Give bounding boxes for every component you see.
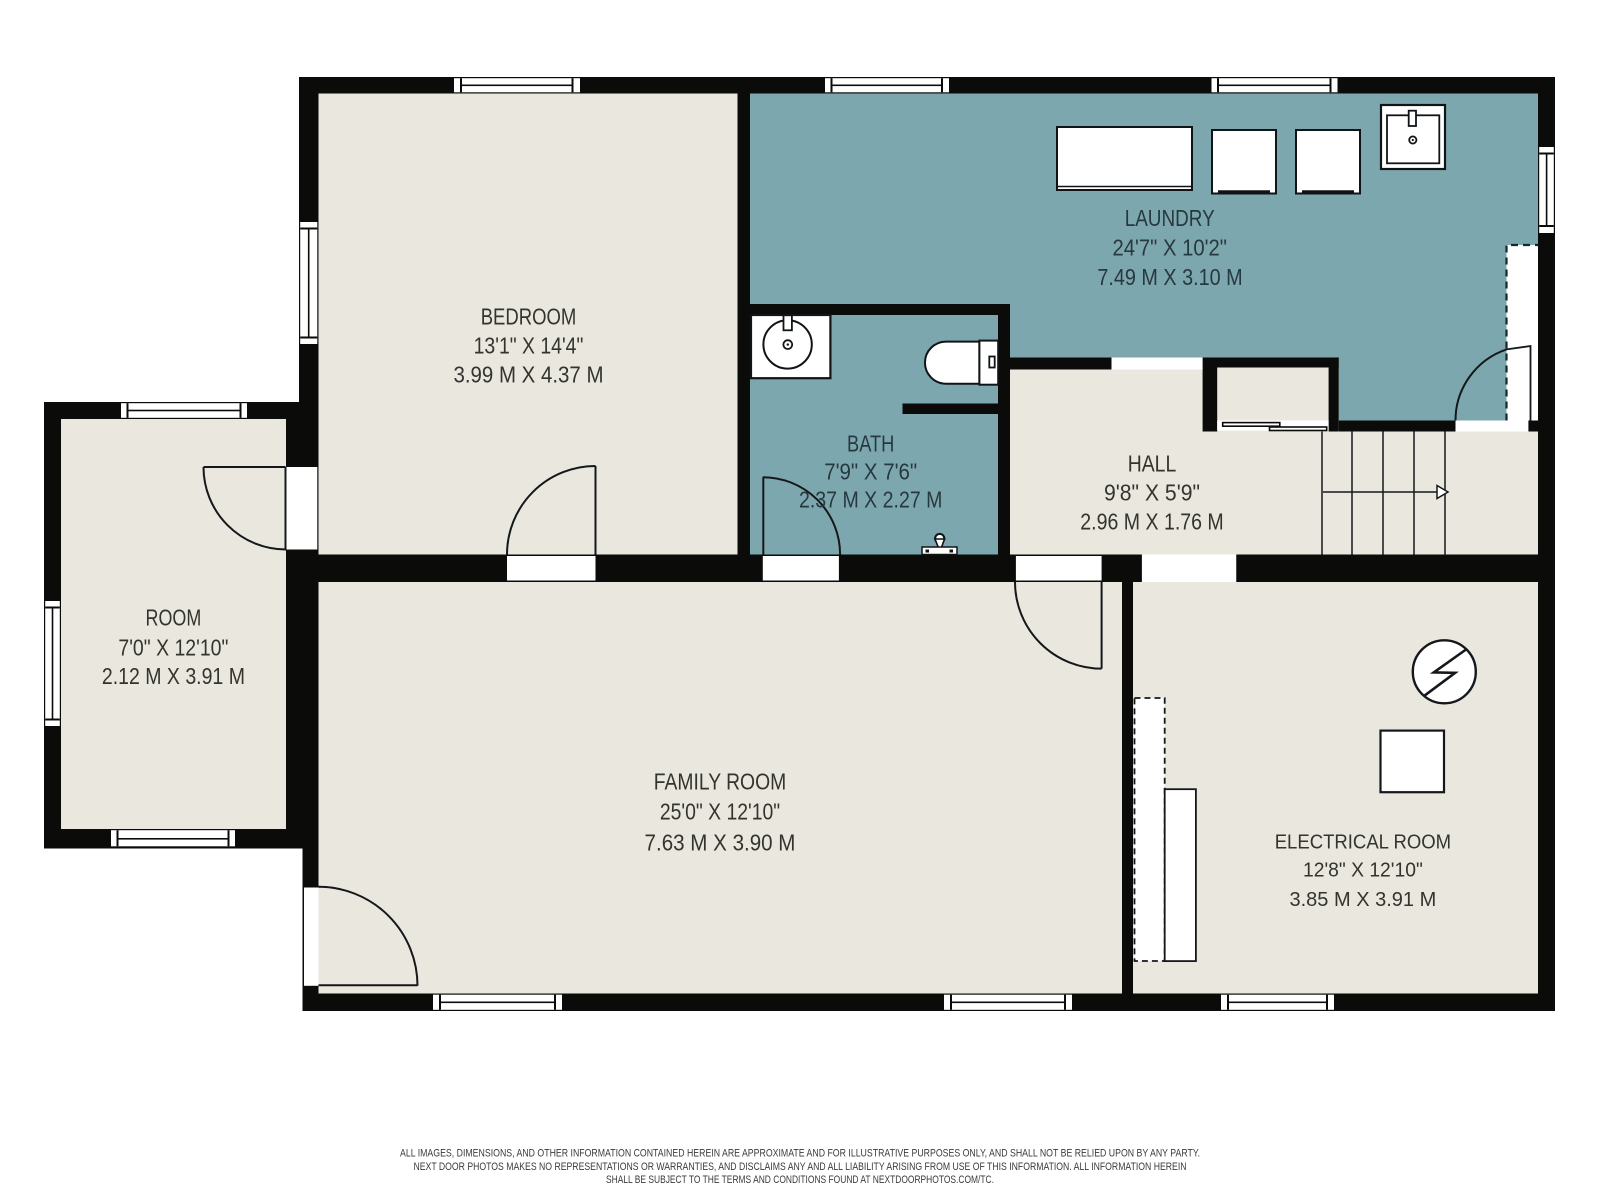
svg-text:BEDROOM: BEDROOM [481, 304, 577, 330]
svg-text:NEXT DOOR PHOTOS MAKES NO REPR: NEXT DOOR PHOTOS MAKES NO REPRESENTATION… [414, 1161, 1187, 1173]
svg-text:HALL: HALL [1128, 451, 1177, 477]
svg-text:7'0" X 12'10": 7'0" X 12'10" [118, 634, 228, 660]
svg-text:3.99 M X 4.37 M: 3.99 M X 4.37 M [454, 362, 604, 388]
svg-text:13'1" X 14'4": 13'1" X 14'4" [474, 332, 584, 358]
svg-text:2.96 M X 1.76 M: 2.96 M X 1.76 M [1080, 509, 1223, 535]
svg-text:ROOM: ROOM [146, 605, 202, 631]
svg-text:7'9" X 7'6": 7'9" X 7'6" [824, 459, 917, 485]
svg-text:25'0" X 12'10": 25'0" X 12'10" [660, 799, 780, 825]
svg-text:FAMILY ROOM: FAMILY ROOM [654, 769, 786, 795]
svg-text:7.49 M X 3.10 M: 7.49 M X 3.10 M [1097, 264, 1242, 290]
svg-text:2.37 M X 2.27 M: 2.37 M X 2.27 M [799, 487, 942, 513]
svg-text:24'7" X 10'2": 24'7" X 10'2" [1113, 235, 1227, 261]
svg-text:2.12 M X 3.91 M: 2.12 M X 3.91 M [102, 663, 245, 689]
svg-text:9'8" X 5'9": 9'8" X 5'9" [1104, 480, 1200, 506]
svg-text:3.85 M X 3.91 M: 3.85 M X 3.91 M [1290, 888, 1437, 911]
svg-text:LAUNDRY: LAUNDRY [1125, 205, 1215, 231]
svg-text:7.63 M X 3.90 M: 7.63 M X 3.90 M [645, 830, 796, 856]
svg-text:SHALL BE SUBJECT TO THE TERMS: SHALL BE SUBJECT TO THE TERMS AND CONDIT… [606, 1174, 994, 1186]
svg-text:BATH: BATH [847, 431, 894, 457]
svg-text:ALL IMAGES, DIMENSIONS, AND OT: ALL IMAGES, DIMENSIONS, AND OTHER INFORM… [400, 1148, 1200, 1160]
svg-text:12'8" X 12'10": 12'8" X 12'10" [1303, 859, 1423, 882]
svg-text:ELECTRICAL ROOM: ELECTRICAL ROOM [1275, 830, 1451, 853]
